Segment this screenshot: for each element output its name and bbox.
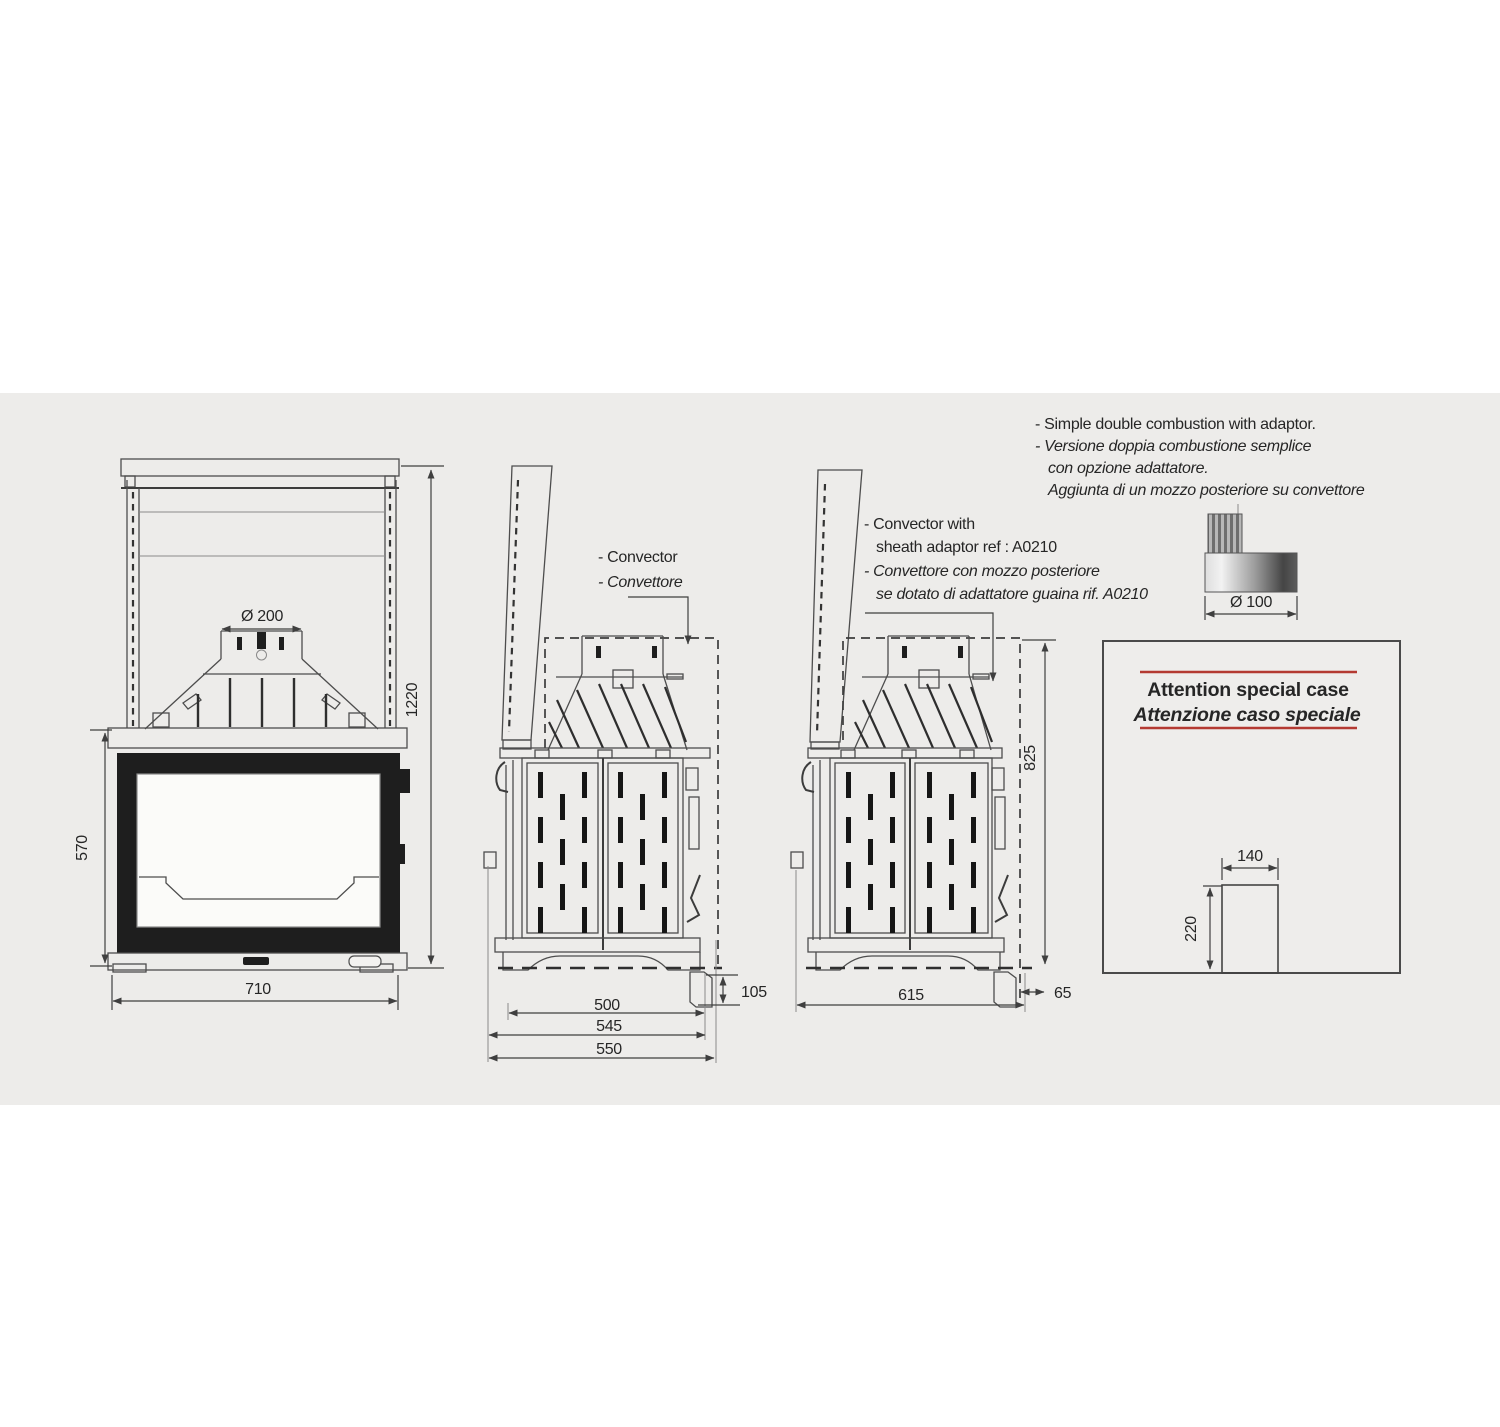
dim-overall-height: 1220 (404, 682, 421, 717)
dim-depth-500: 500 (594, 997, 620, 1014)
dim-lever-drop: 105 (741, 984, 767, 1001)
dim-flue-diameter: Ø 200 (241, 608, 283, 625)
combustion-note-line1: - Simple double combustion with adaptor. (1035, 416, 1316, 433)
adaptor-stub-cylinder (1208, 514, 1242, 553)
firebox-glass (137, 774, 380, 927)
attention-box: Attention special case Attenzione caso s… (1103, 641, 1400, 973)
combustion-note-line2: - Versione doppia combustione semplice (1035, 438, 1312, 455)
dim-depth-615: 615 (898, 987, 924, 1004)
dim-depth-545: 545 (596, 1018, 622, 1035)
combustion-note-line3: con opzione adattatore. (1048, 460, 1208, 477)
dim-adaptor-diameter: Ø 100 (1230, 594, 1272, 611)
dim-convector-height: 825 (1022, 745, 1039, 771)
dim-cutout-width: 140 (1237, 848, 1263, 865)
convector-label-it: - Convettore (598, 574, 683, 591)
attention-title-it: Attenzione caso speciale (1132, 704, 1360, 726)
attention-title-en: Attention special case (1147, 679, 1349, 701)
fireplace-dimension-diagram: Ø 200 570 710 1220 (0, 0, 1500, 1427)
adaptor-note-line4: se dotato di adattatore guaina rif. A021… (876, 586, 1148, 603)
convector-label-en: - Convector (598, 549, 678, 566)
dim-firebox-height: 570 (74, 835, 91, 861)
technical-drawing-page: Ø 200 570 710 1220 (0, 0, 1500, 1427)
adaptor-body-cylinder (1205, 553, 1297, 592)
dim-front-width: 710 (245, 981, 271, 998)
adaptor-note-line3: - Convettore con mozzo posteriore (864, 563, 1100, 580)
adaptor-note-line2: sheath adaptor ref : A0210 (876, 539, 1057, 556)
dim-adaptor-offset: 65 (1054, 985, 1072, 1002)
dim-cutout-height: 220 (1183, 916, 1200, 942)
combustion-note-line4: Aggiunta di un mozzo posteriore su conve… (1047, 482, 1365, 499)
dim-depth-550: 550 (596, 1041, 622, 1058)
adaptor-note-line1: - Convector with (864, 516, 975, 533)
